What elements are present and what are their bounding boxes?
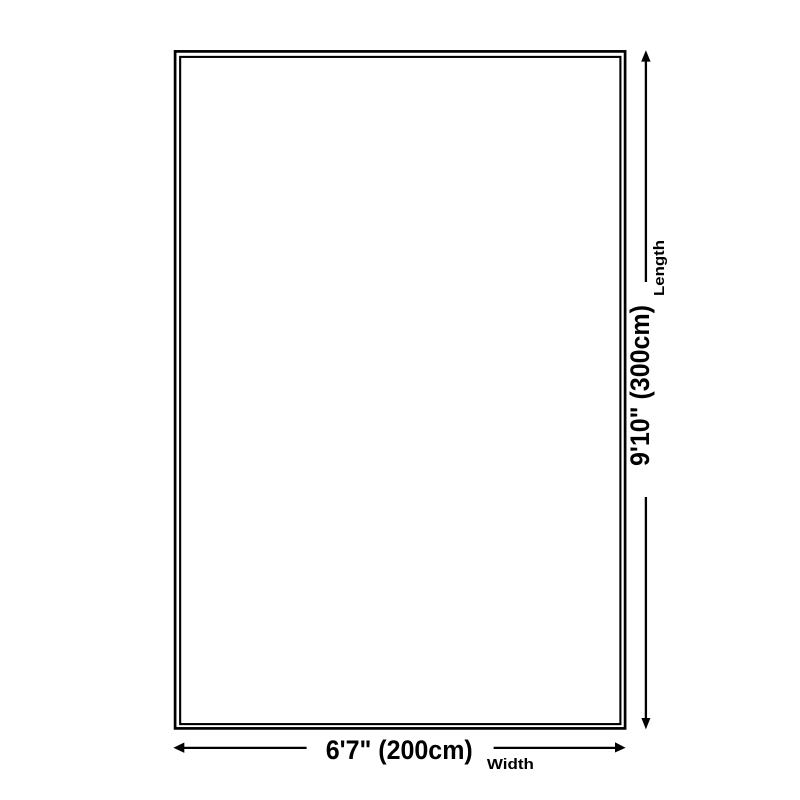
svg-text:Width: Width (487, 757, 534, 773)
svg-text:6'7" (200cm): 6'7" (200cm) (326, 735, 473, 765)
svg-text:Length: Length (652, 240, 668, 296)
svg-text:9'10" (300cm): 9'10" (300cm) (625, 305, 655, 466)
